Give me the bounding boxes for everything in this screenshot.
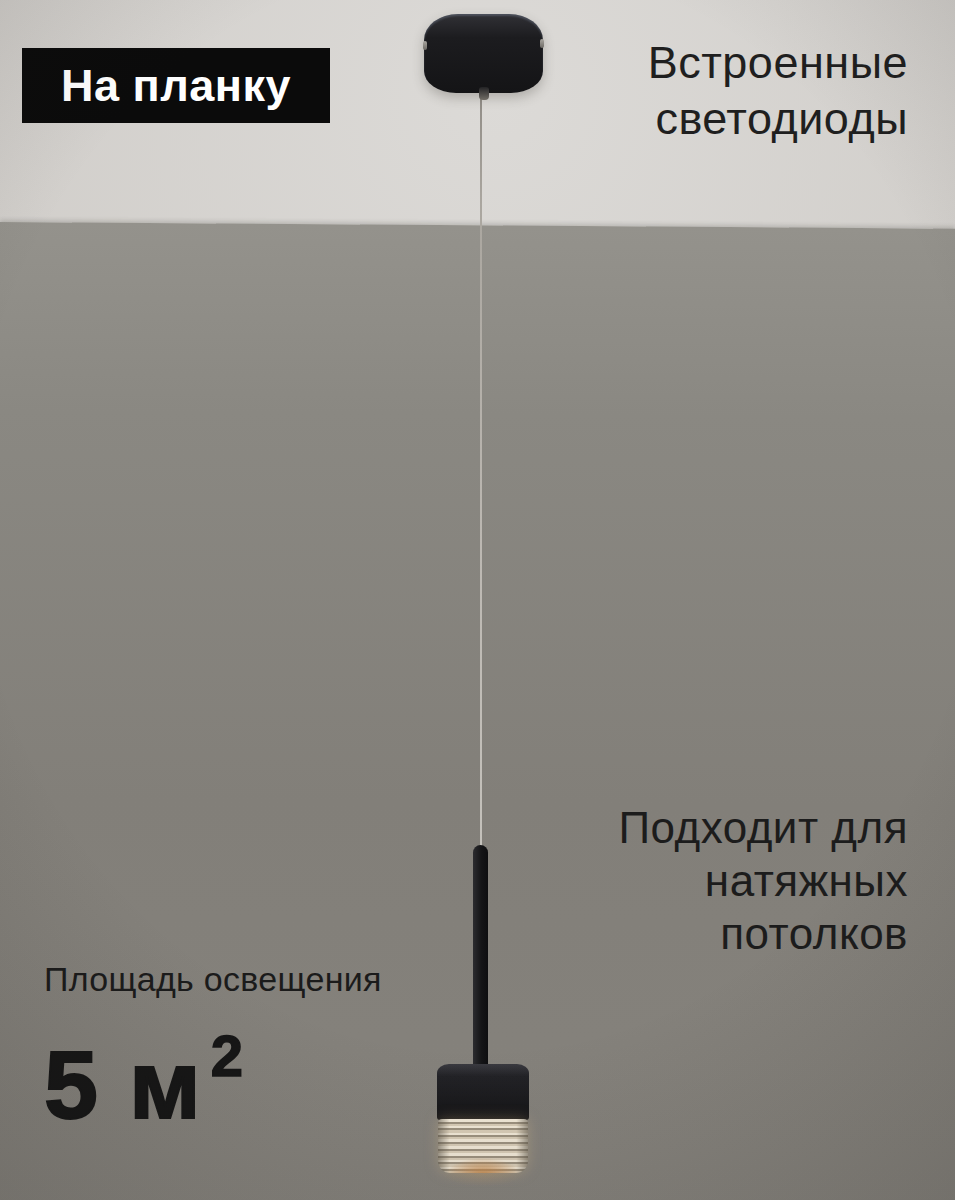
- cable-grip: [479, 87, 489, 100]
- suspension-cable: [480, 90, 482, 848]
- lighting-area-number: 5 м: [44, 1030, 203, 1139]
- canopy-screw-right: [540, 39, 544, 48]
- light-glow: [425, 1162, 541, 1200]
- mount-type-badge: На планку: [22, 48, 330, 123]
- ceiling-canopy: [424, 14, 543, 93]
- annotation-stretch-ceilings: Подходит для натяжных потолков: [618, 801, 908, 960]
- annotation-line: потолков: [618, 907, 908, 960]
- lamp-stem-rod: [473, 845, 488, 1067]
- lighting-area-value: 5 м2: [44, 1036, 245, 1133]
- lighting-area-superscript: 2: [211, 1023, 245, 1088]
- annotation-line: светодиоды: [648, 91, 908, 147]
- canopy-screw-left: [423, 41, 427, 50]
- annotation-line: Встроенные: [648, 35, 908, 91]
- annotation-line: Подходит для: [618, 801, 908, 854]
- mount-type-badge-label: На планку: [61, 60, 291, 112]
- lamp-head: [437, 1064, 529, 1120]
- annotation-built-in-leds: Встроенные светодиоды: [648, 35, 908, 147]
- annotation-line: натяжных: [618, 854, 908, 907]
- product-photo: На планку Встроенные светодиоды Подходит…: [0, 0, 955, 1200]
- lighting-area-label: Площадь освещения: [44, 960, 382, 999]
